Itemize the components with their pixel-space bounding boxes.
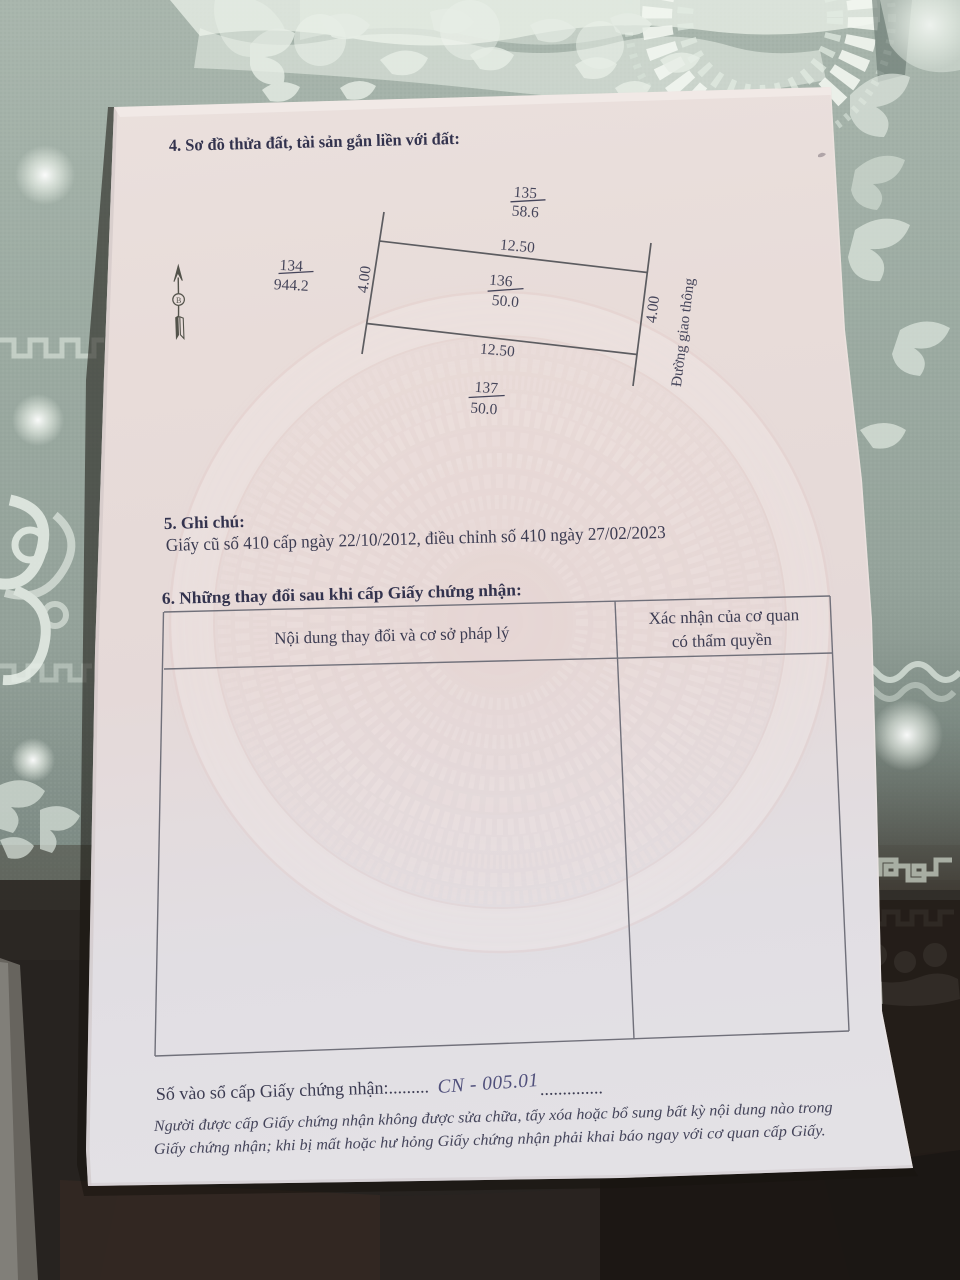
svg-text:944.2: 944.2 [273,276,309,295]
svg-text:58.6: 58.6 [511,203,539,222]
svg-text:135: 135 [513,184,538,203]
svg-text:..............: .............. [540,1077,604,1099]
svg-text:5. Ghi chú:: 5. Ghi chú: [164,512,245,533]
svg-text:B: B [176,296,181,305]
svg-text:50.0: 50.0 [470,400,498,419]
svg-text:136: 136 [489,272,514,291]
svg-text:12.50: 12.50 [479,341,515,361]
svg-text:có thẩm quyền: có thẩm quyền [672,630,773,651]
svg-text:Xác nhận của cơ quan: Xác nhận của cơ quan [648,605,800,628]
svg-text:4.00: 4.00 [354,265,374,294]
svg-text:12.50: 12.50 [499,236,536,256]
svg-text:137: 137 [474,379,499,398]
svg-text:4.00: 4.00 [643,295,663,324]
svg-text:50.0: 50.0 [491,292,520,311]
